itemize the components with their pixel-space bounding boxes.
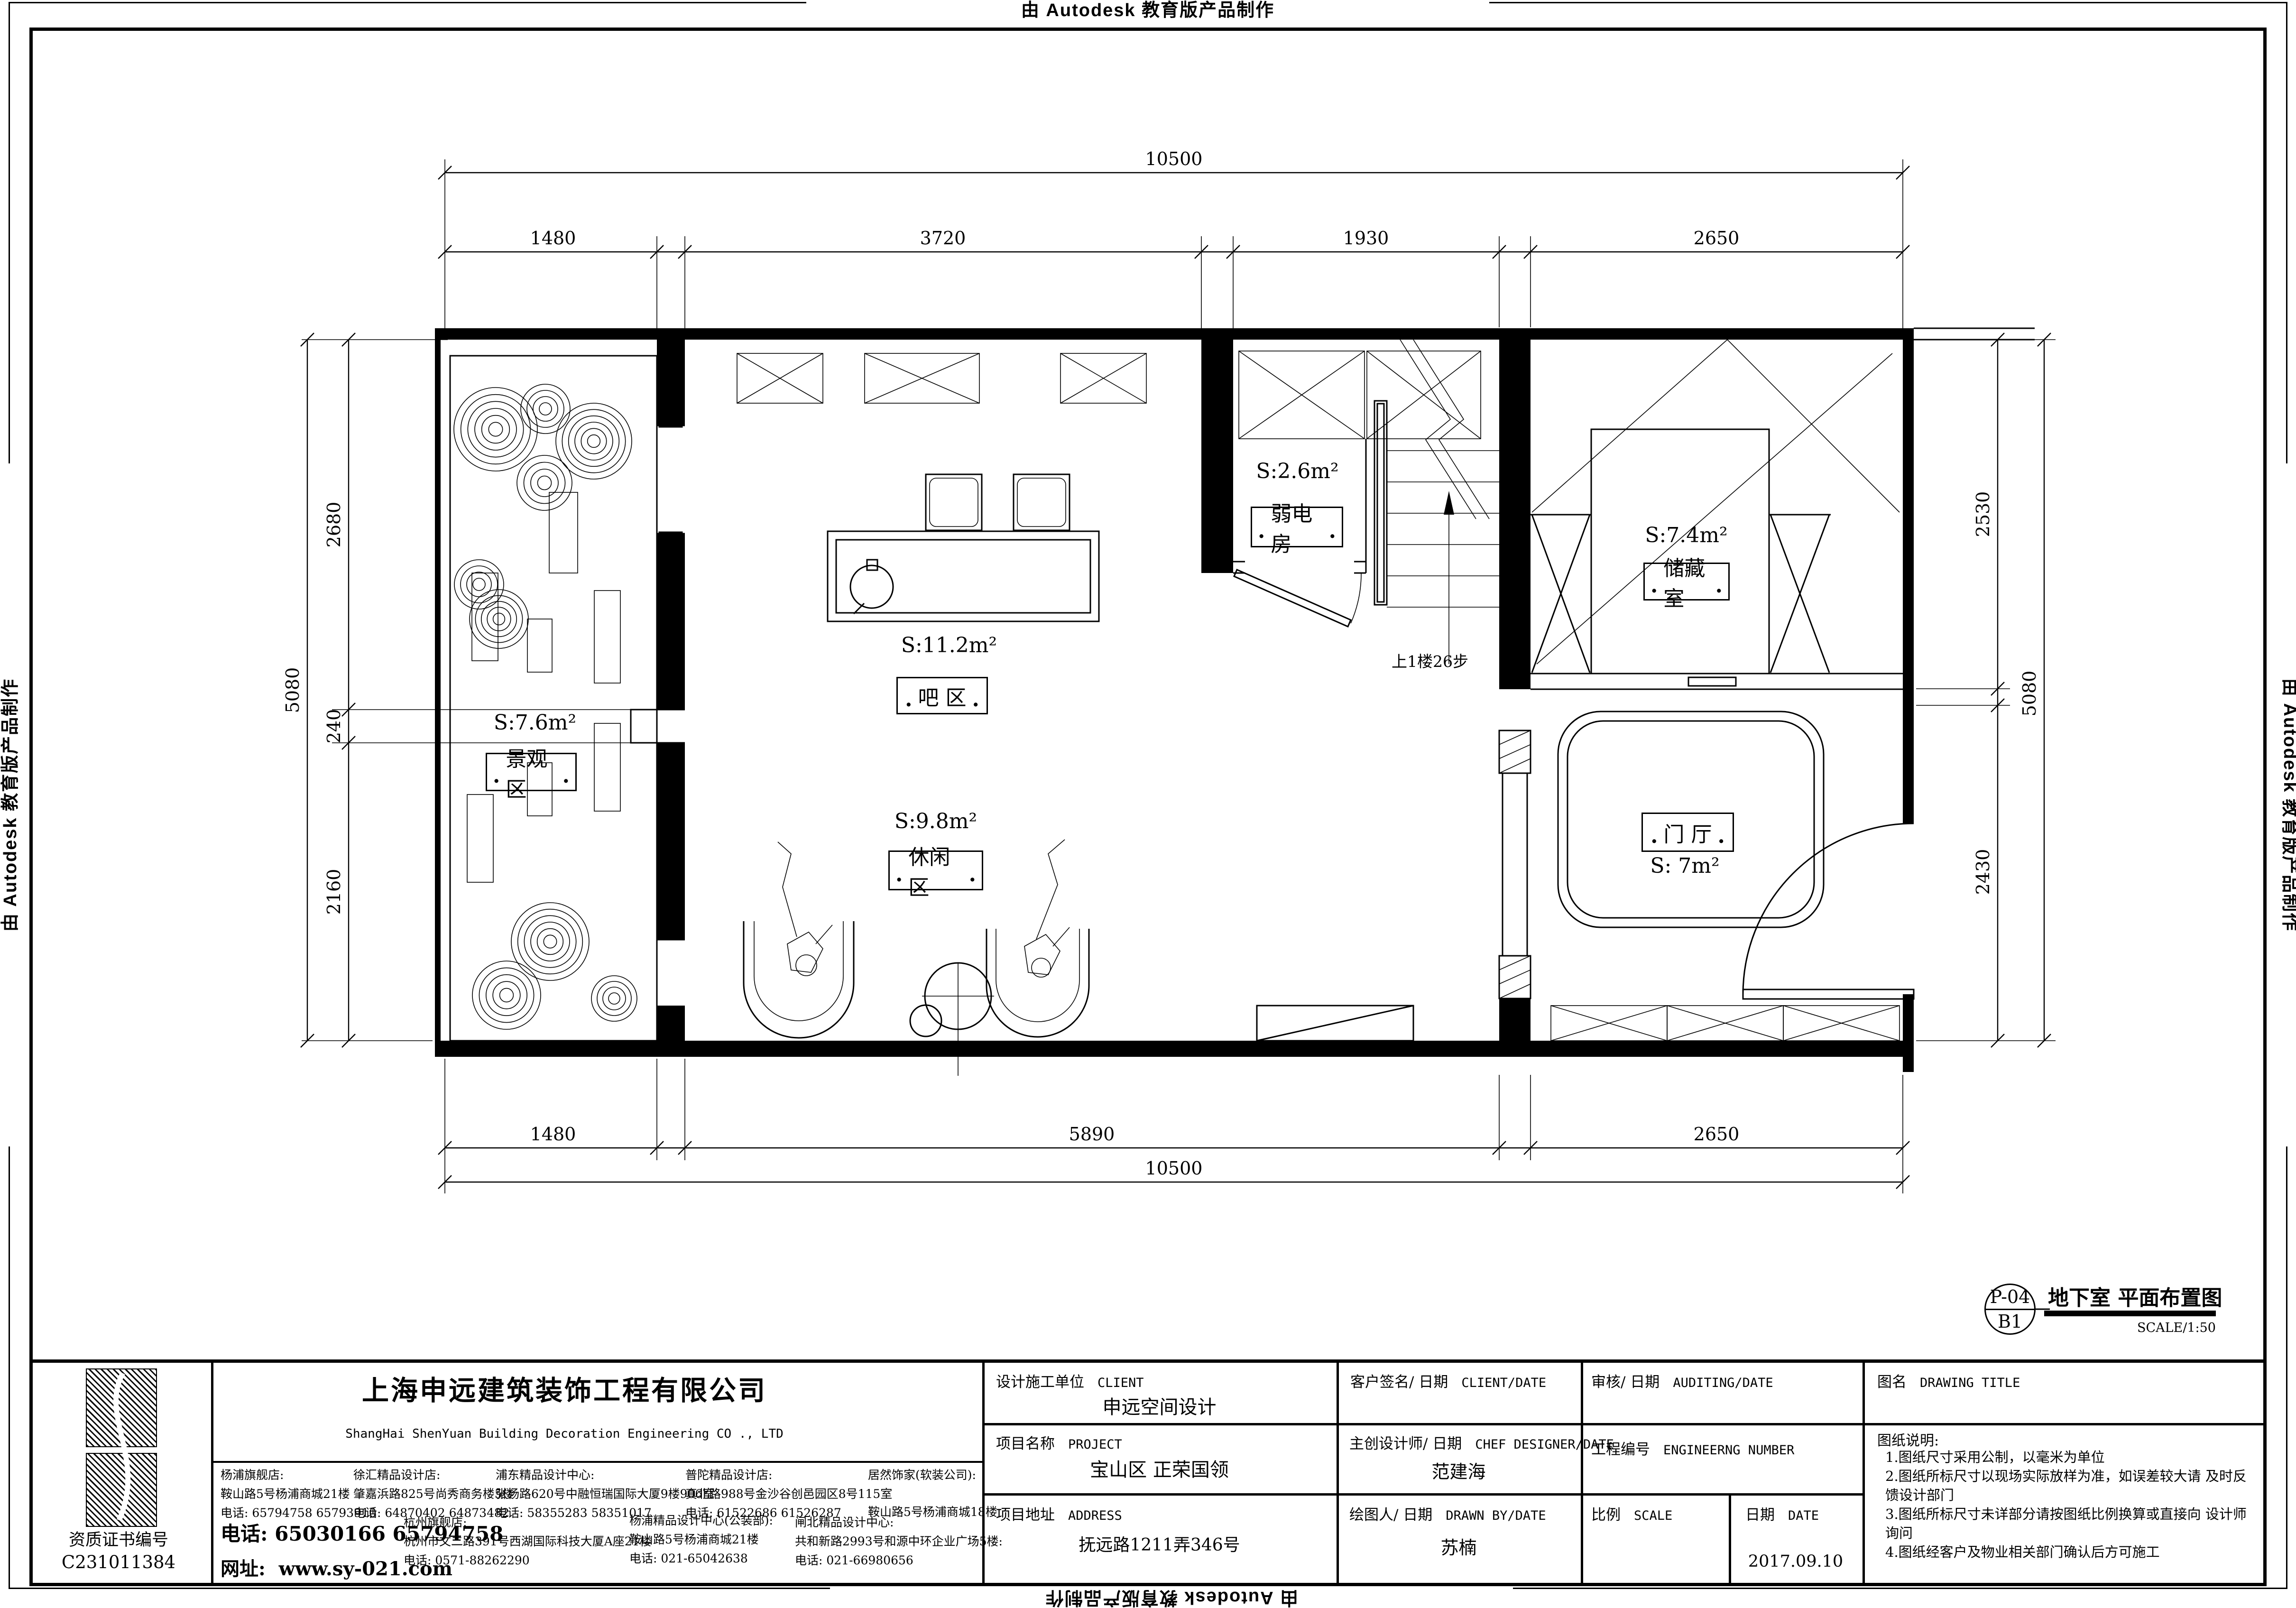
store-name: 闸北精品设计中心: bbox=[795, 1513, 1003, 1532]
notes-list: 1.图纸尺寸采用公制，以毫米为单位2.图纸所标尺寸以现场实际放样为准，如误差较大… bbox=[1885, 1448, 2255, 1562]
date-zh: 日期 bbox=[1745, 1506, 1775, 1524]
store-addr: 杭州市文二路391号西湖国际科技大厦A座21楼 bbox=[404, 1532, 652, 1551]
drawing-title: 地下室 平面布置图 bbox=[2048, 1281, 2220, 1311]
room-area-label: S:7.6m² bbox=[485, 711, 585, 735]
sheet-number-stamp: P-04 B1 bbox=[1984, 1284, 2036, 1335]
store-tel: 电话: 021-66980656 bbox=[795, 1551, 1003, 1570]
addr-zh: 项目地址 bbox=[996, 1506, 1055, 1524]
tb-h1 bbox=[982, 1423, 2267, 1425]
cert-label: 资质证书编号 bbox=[47, 1526, 190, 1551]
web-label: 网址: bbox=[221, 1558, 266, 1580]
room-name-box: 弱电房 bbox=[1251, 507, 1343, 547]
project-label: 项目名称PROJECT bbox=[996, 1432, 1122, 1453]
title-en: DRAWING TITLE bbox=[1920, 1376, 2020, 1390]
store-addr: 真北路988号金沙谷创邑园区8号115室 bbox=[685, 1485, 892, 1504]
autodesk-stamp-right: 由 Autodesk 教育版产品制作 bbox=[2279, 463, 2296, 1146]
cert-number: C231011384 bbox=[47, 1552, 190, 1572]
engno-en: ENGINEERNG NUMBER bbox=[1663, 1443, 1794, 1458]
date-value: 2017.09.10 bbox=[1729, 1552, 1863, 1571]
store-name: 浦东精品设计中心: bbox=[496, 1466, 714, 1485]
client-value: 申远空间设计 bbox=[982, 1392, 1337, 1419]
store-name: 杭州旗舰店: bbox=[404, 1513, 652, 1532]
tb-v1 bbox=[211, 1362, 213, 1583]
address-label: 项目地址ADDRESS bbox=[996, 1503, 1122, 1524]
drawn-zh: 绘图人/ 日期 bbox=[1349, 1506, 1432, 1524]
project-en: PROJECT bbox=[1068, 1437, 1122, 1452]
title-zh: 图名 bbox=[1877, 1374, 1907, 1391]
room-area-label: S:11.2m² bbox=[899, 633, 999, 657]
tb-v5 bbox=[1863, 1362, 1865, 1583]
autodesk-stamp-left: 由 Autodesk 教育版产品制作 bbox=[0, 463, 21, 1146]
note-item: 3.图纸所标尺寸未详部分请按图纸比例换算或直接向 设计师询问 bbox=[1885, 1505, 2255, 1543]
audit-en: AUDITING/DATE bbox=[1673, 1376, 1773, 1390]
project-zh: 项目名称 bbox=[996, 1435, 1055, 1452]
scale-en: SCALE bbox=[1634, 1508, 1672, 1523]
room-name-box: 门 厅 bbox=[1641, 813, 1734, 852]
tb-h3 bbox=[982, 1493, 1863, 1496]
note-item: 2.图纸所标尺寸以现场实际放样为准，如误差较大请 及时反馈设计部门 bbox=[1885, 1467, 2255, 1505]
store-entry: 杨浦精品设计中心(公装部):鞍山路5号杨浦商城21楼电话: 021-650426… bbox=[629, 1511, 773, 1568]
room-area-label: S:7.4m² bbox=[1635, 523, 1737, 547]
client-sign-en: CLIENT/DATE bbox=[1461, 1376, 1546, 1390]
store-name: 徐汇精品设计店: bbox=[353, 1466, 514, 1485]
phone-label: 电话: bbox=[221, 1522, 268, 1545]
store-addr: 共和新路2993号和源中环企业广场5楼: bbox=[795, 1532, 1003, 1551]
drawing-title-label: 图名DRAWING TITLE bbox=[1877, 1370, 2020, 1391]
autodesk-stamp-top: 由 Autodesk 教育版产品制作 bbox=[806, 0, 1489, 21]
address-value: 抚远路1211弄346号 bbox=[982, 1531, 1337, 1556]
engno-zh: 工程编号 bbox=[1591, 1441, 1650, 1458]
room-name-box: 景观区 bbox=[486, 753, 577, 791]
notes-title: 图纸说明: bbox=[1877, 1429, 1939, 1450]
tb-h2 bbox=[211, 1461, 982, 1463]
company-name: 上海申远建筑装饰工程有限公司 bbox=[266, 1369, 863, 1408]
client-sign-zh: 客户签名/ 日期 bbox=[1350, 1374, 1448, 1391]
drawn-label: 绘图人/ 日期DRAWN BY/DATE bbox=[1349, 1503, 1546, 1524]
store-addr: 肇嘉浜路825号尚秀商务楼5楼 bbox=[353, 1485, 514, 1504]
date-en: DATE bbox=[1788, 1508, 1819, 1523]
company-logo bbox=[86, 1368, 155, 1525]
audit-zh: 审核/ 日期 bbox=[1591, 1374, 1660, 1391]
sheet-level: B1 bbox=[1986, 1310, 2034, 1334]
project-value: 宝山区 正荣国领 bbox=[982, 1454, 1337, 1482]
client-sign-label: 客户签名/ 日期CLIENT/DATE bbox=[1350, 1370, 1546, 1391]
store-name: 普陀精品设计店: bbox=[685, 1466, 892, 1485]
date-label: 日期DATE bbox=[1745, 1503, 1819, 1524]
store-addr: 张杨路620号中融恒瑞国际大厦9楼906室 bbox=[496, 1485, 714, 1504]
scale-zh: 比例 bbox=[1591, 1506, 1621, 1524]
company-name-en: ShangHai ShenYuan Building Decoration En… bbox=[237, 1427, 892, 1441]
room-area-label: S:2.6m² bbox=[1246, 459, 1348, 483]
autodesk-stamp-bottom: 由 Autodesk 教育版产品制作 bbox=[830, 1587, 1513, 1608]
chief-value: 范建海 bbox=[1337, 1457, 1581, 1483]
store-name: 杨浦精品设计中心(公装部): bbox=[629, 1511, 773, 1530]
room-area-label: S:9.8m² bbox=[886, 809, 986, 833]
chief-label: 主创设计师/ 日期CHEF DESIGNER/DATE bbox=[1349, 1432, 1614, 1453]
audit-label: 审核/ 日期AUDITING/DATE bbox=[1591, 1370, 1773, 1391]
stair-note: 上1楼26步 bbox=[1366, 649, 1494, 672]
tb-v4 bbox=[1581, 1362, 1583, 1583]
store-name: 居然饰家(软装公司): bbox=[868, 1466, 997, 1485]
logo-s-curve bbox=[86, 1368, 155, 1525]
addr-en: ADDRESS bbox=[1068, 1508, 1122, 1523]
store-entry: 杭州旗舰店:杭州市文二路391号西湖国际科技大厦A座21楼电话: 0571-88… bbox=[404, 1513, 652, 1570]
room-name-box: 储藏室 bbox=[1643, 563, 1730, 601]
room-name-box: 吧 区 bbox=[896, 677, 988, 714]
room-name-box: 休闲区 bbox=[888, 850, 983, 890]
room-area-label: S: 7m² bbox=[1634, 854, 1736, 878]
store-entry: 闸北精品设计中心:共和新路2993号和源中环企业广场5楼:电话: 021-669… bbox=[795, 1513, 1003, 1570]
note-item: 4.图纸经客户及物业相关部门确认后方可施工 bbox=[1885, 1543, 2255, 1562]
sheet-number: P-04 bbox=[1986, 1285, 2034, 1310]
client-label: 设计施工单位CLIENT bbox=[996, 1370, 1144, 1391]
store-tel: 电话: 021-65042638 bbox=[629, 1549, 773, 1568]
drawing-title-underline bbox=[2044, 1311, 2216, 1316]
cad-sheet: { "edge_stamps": { "top": "由 Autodesk 教育… bbox=[0, 0, 2296, 1608]
titleblock-top-line bbox=[29, 1359, 2267, 1363]
drawing-scale: SCALE/1:50 bbox=[2044, 1321, 2216, 1335]
client-label-zh: 设计施工单位 bbox=[996, 1374, 1084, 1391]
store-addr: 鞍山路5号杨浦商城21楼 bbox=[629, 1530, 773, 1549]
drawn-value: 苏楠 bbox=[1337, 1533, 1581, 1559]
chief-zh: 主创设计师/ 日期 bbox=[1349, 1435, 1462, 1452]
sheet-inner-border bbox=[29, 28, 2267, 1586]
client-label-en: CLIENT bbox=[1097, 1376, 1144, 1390]
store-tel: 电话: 0571-88262290 bbox=[404, 1551, 652, 1570]
note-item: 1.图纸尺寸采用公制，以毫米为单位 bbox=[1885, 1448, 2255, 1467]
drawn-en: DRAWN BY/DATE bbox=[1446, 1508, 1546, 1523]
engno-label: 工程编号ENGINEERNG NUMBER bbox=[1591, 1437, 1794, 1459]
scale-label: 比例SCALE bbox=[1591, 1503, 1672, 1524]
